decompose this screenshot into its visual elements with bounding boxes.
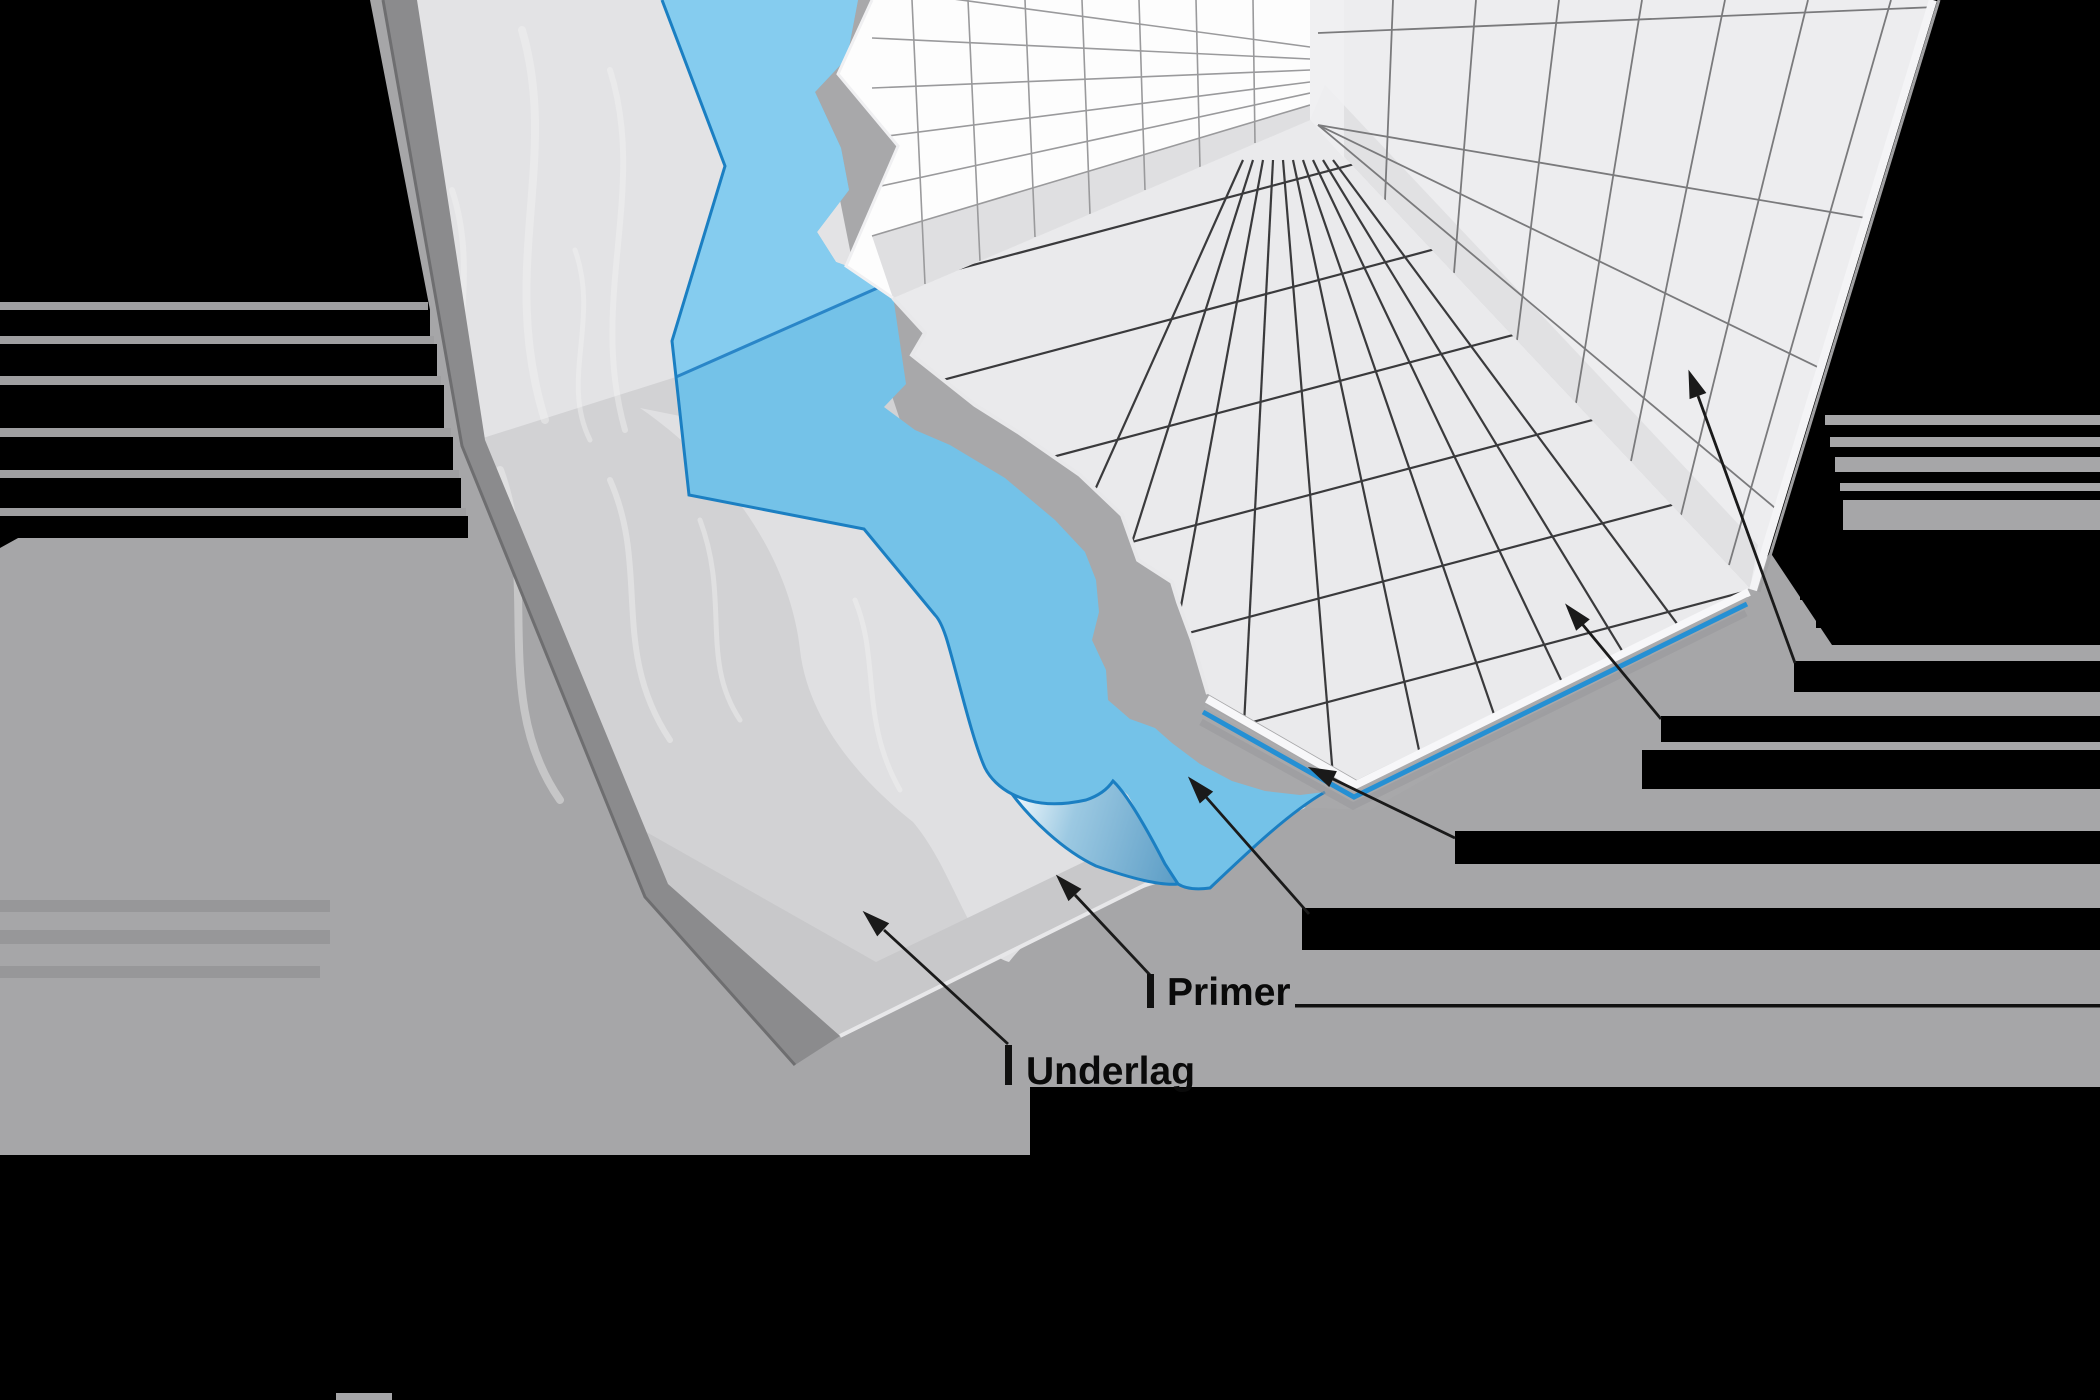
- svg-text:Primer: Primer: [1167, 971, 1291, 1014]
- svg-text:Underlag: Underlag: [1026, 1050, 1195, 1093]
